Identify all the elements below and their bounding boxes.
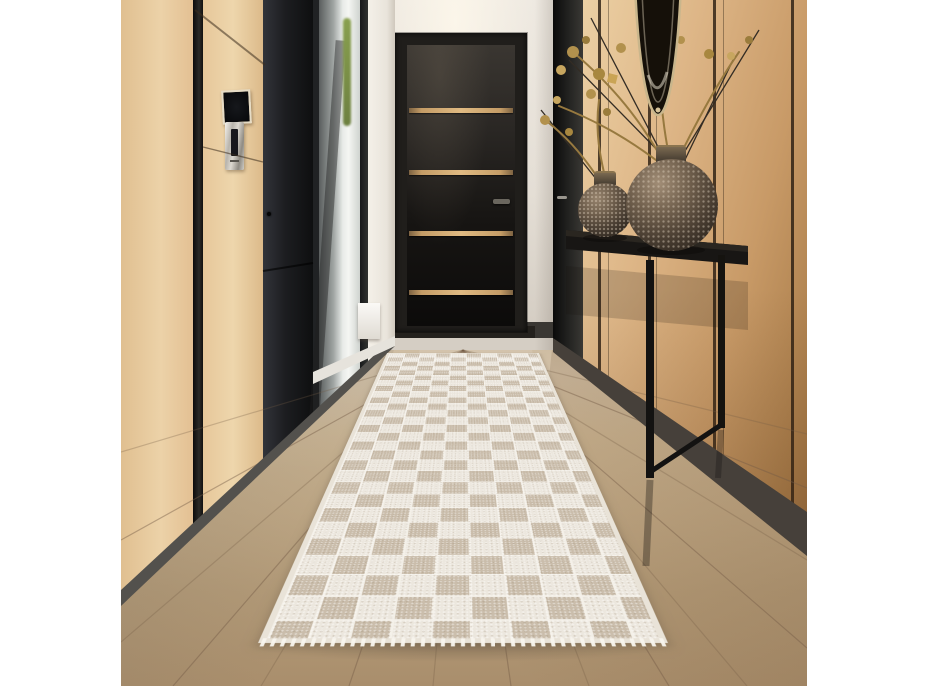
gold-bead [607,73,618,84]
hallway-photo-canvas [0,0,928,686]
oval-mirror [634,0,682,115]
bronze-vase-large [626,159,718,251]
left-wall-seams [195,10,313,271]
baseboards [121,336,807,606]
hallway-photo [121,0,807,686]
scene-overlay [121,0,807,686]
rug-shadow [239,626,683,662]
console-table [566,230,748,566]
bronze-vase-small [578,183,632,237]
